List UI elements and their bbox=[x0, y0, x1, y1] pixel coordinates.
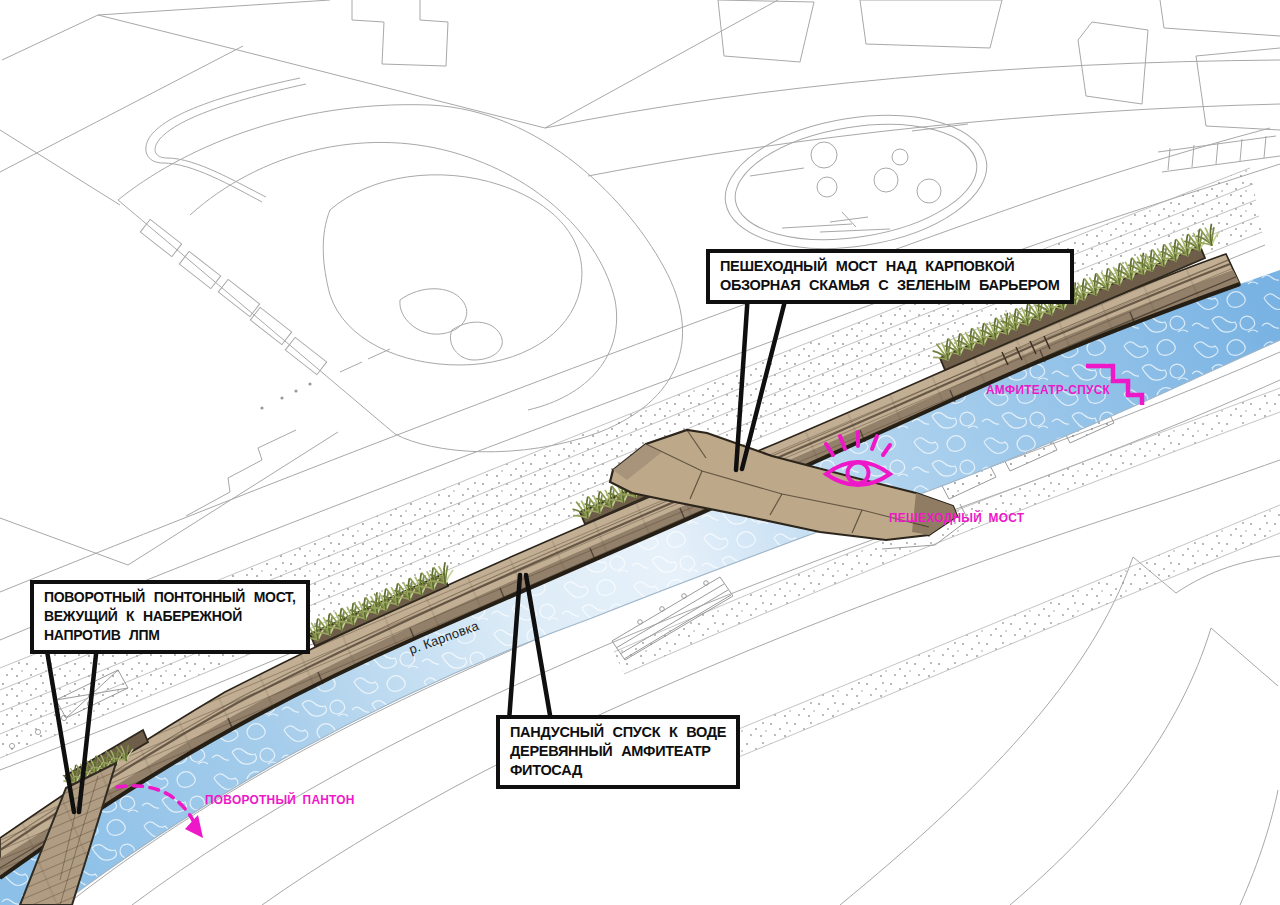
callout-ramp-descent: ПАНДУСНЫЙ СПУСК К ВОДЕ ДЕРЕВЯННЫЙ АМФИТЕ… bbox=[496, 715, 740, 789]
masterplan-diagram: ПЕШЕХОДНЫЙ МОСТ НАД КАРПОВКОЙ ОБЗОРНАЯ С… bbox=[0, 0, 1280, 905]
callout-line: ОБЗОРНАЯ СКАМЬЯ С ЗЕЛЕНЫМ БАРЬЕРОМ bbox=[720, 276, 1060, 295]
callout-line: ПЕШЕХОДНЫЙ МОСТ НАД КАРПОВКОЙ bbox=[720, 257, 1060, 276]
label-amphitheater-descent: АМФИТЕАТР-СПУСК bbox=[986, 383, 1110, 397]
callout-line: ФИТОСАД bbox=[510, 761, 726, 780]
callout-line: ПАНДУСНЫЙ СПУСК К ВОДЕ bbox=[510, 723, 726, 742]
callout-line: НАПРОТИВ ЛПМ bbox=[44, 626, 296, 645]
callout-pedestrian-bridge: ПЕШЕХОДНЫЙ МОСТ НАД КАРПОВКОЙ ОБЗОРНАЯ С… bbox=[706, 249, 1074, 304]
callout-line: ПОВОРОТНЫЙ ПОНТОННЫЙ МОСТ, bbox=[44, 588, 296, 607]
callout-pontoon-bridge: ПОВОРОТНЫЙ ПОНТОННЫЙ МОСТ, ВЕЖУЩИЙ К НАБ… bbox=[30, 580, 310, 654]
label-pedestrian-bridge: ПЕШЕХОДНЫЙ МОСТ bbox=[889, 511, 1024, 525]
label-rotating-pontoon: ПОВОРОТНЫЙ ПАНТОН bbox=[205, 793, 355, 807]
callout-line: ДЕРЕВЯННЫЙ АМФИТЕАТР bbox=[510, 742, 726, 761]
callout-line: ВЕЖУЩИЙ К НАБЕРЕЖНОЙ bbox=[44, 607, 296, 626]
